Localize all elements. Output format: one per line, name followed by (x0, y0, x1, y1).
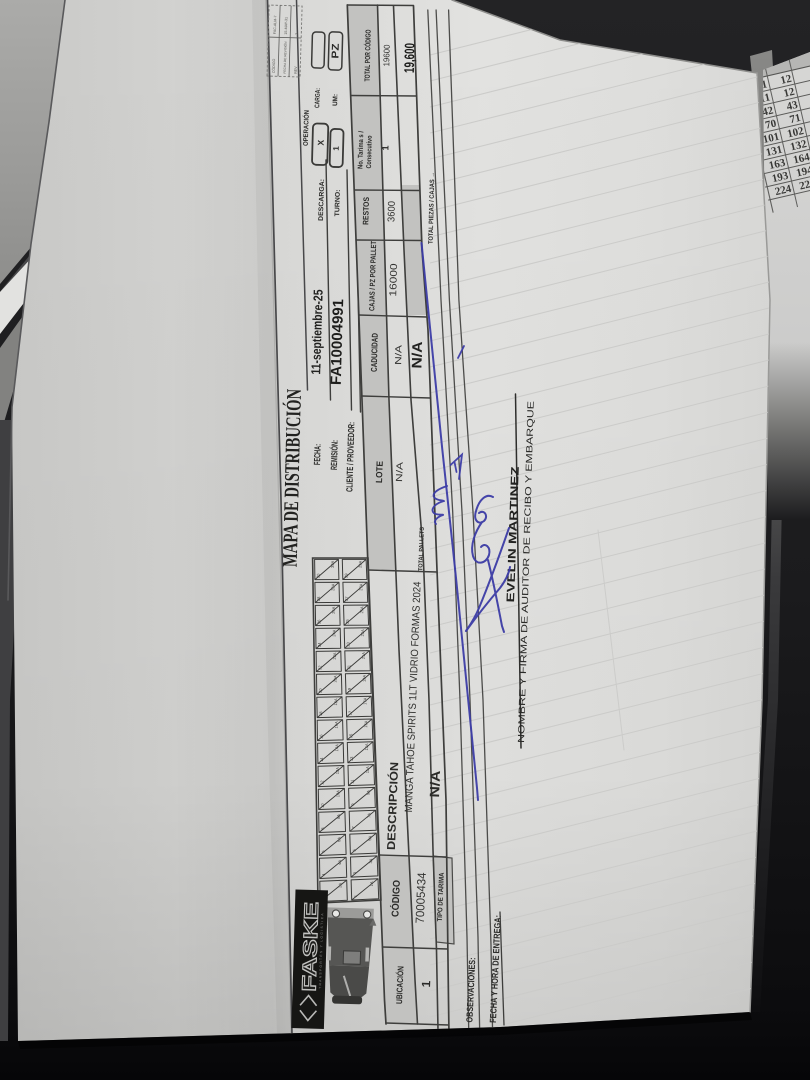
svg-text:23A: 23A (360, 629, 365, 637)
svg-text:FAC-ALM-7: FAC-ALM-7 (273, 15, 278, 34)
svg-text:CARGA:: CARGA: (314, 88, 322, 108)
svg-text:27A: 27A (358, 583, 363, 591)
svg-text:1: 1 (332, 146, 341, 151)
svg-text:11-septiembre-25: 11-septiembre-25 (308, 289, 326, 374)
svg-text:24A: 24A (331, 629, 336, 637)
svg-text:No. Tarima s /: No. Tarima s / (356, 131, 365, 169)
svg-text:17A: 17A (362, 697, 367, 705)
svg-text:1A: 1A (369, 881, 374, 886)
svg-text:2A: 2A (337, 883, 342, 888)
svg-text:PZ: PZ (330, 43, 341, 58)
svg-text:16A: 16A (334, 721, 339, 729)
svg-text:MAPA DE DISTRIBUCIÓN: MAPA DE DISTRIBUCIÓN (278, 389, 306, 568)
svg-text:1: 1 (419, 980, 433, 988)
svg-text:UM:: UM: (332, 94, 339, 106)
svg-text:18A: 18A (333, 698, 338, 706)
svg-text:UBICACIÓN: UBICACIÓN (394, 966, 406, 1004)
svg-text:70005434: 70005434 (413, 872, 429, 924)
svg-text:15A: 15A (363, 720, 368, 728)
svg-text:CÓDIGO: CÓDIGO (271, 58, 276, 73)
svg-text:6A: 6A (336, 837, 341, 842)
svg-text:2: 2 (295, 33, 299, 35)
svg-text:DESCARGA:: DESCARGA: (318, 179, 326, 221)
svg-text:N/A: N/A (408, 341, 425, 368)
svg-text:20A: 20A (333, 675, 338, 683)
svg-text:26A: 26A (331, 606, 336, 614)
svg-text:CADUCIDAD: CADUCIDAD (369, 333, 380, 372)
svg-text:X: X (316, 139, 326, 145)
svg-text:12A: 12A (335, 767, 340, 775)
svg-text:3A: 3A (368, 858, 373, 863)
svg-text:N/A: N/A (427, 770, 443, 798)
svg-text:14A: 14A (334, 744, 339, 752)
svg-text:N/A: N/A (393, 345, 404, 365)
svg-text:19600: 19600 (381, 44, 391, 66)
svg-text:FECHA:: FECHA: (312, 444, 323, 465)
svg-text:8A: 8A (336, 814, 341, 819)
svg-text:REV: REV (294, 66, 298, 74)
svg-text:3600: 3600 (386, 200, 398, 222)
svg-text:9A: 9A (366, 790, 371, 795)
svg-text:25A: 25A (359, 606, 364, 614)
svg-text:CLIENTE / PROVEEDOR:: CLIENTE / PROVEEDOR: (344, 422, 356, 492)
svg-text:1: 1 (380, 145, 390, 150)
svg-text:LOTE: LOTE (374, 461, 385, 483)
svg-text:11A: 11A (365, 766, 370, 773)
svg-text:21A: 21A (361, 652, 366, 660)
svg-text:19,600: 19,600 (401, 43, 418, 73)
svg-text:REMISIÓN:: REMISIÓN: (329, 440, 340, 470)
svg-text:FA10004991: FA10004991 (328, 299, 348, 385)
svg-text:30A: 30A (330, 560, 335, 568)
svg-text:5A: 5A (367, 835, 372, 840)
svg-text:CÓDIGO: CÓDIGO (389, 880, 403, 918)
svg-text:28A: 28A (330, 583, 335, 591)
svg-text:29A: 29A (358, 560, 363, 568)
svg-text:19A: 19A (362, 675, 367, 683)
svg-text:7A: 7A (366, 813, 371, 818)
svg-text:RESTOS: RESTOS (361, 196, 371, 225)
svg-text:4A: 4A (337, 860, 342, 865)
svg-text:16000: 16000 (388, 263, 400, 297)
svg-text:10A: 10A (335, 790, 340, 798)
svg-text:13A: 13A (364, 743, 369, 751)
svg-text:TURNO:: TURNO: (334, 189, 342, 216)
svg-text:22A: 22A (332, 652, 337, 660)
svg-text:N/A: N/A (394, 462, 405, 482)
svg-text:TOTAL POR CÓDIGO: TOTAL POR CÓDIGO (363, 29, 373, 81)
svg-text:Consecutivo: Consecutivo (365, 135, 374, 168)
svg-text:15-MAY-31: 15-MAY-31 (284, 17, 289, 35)
